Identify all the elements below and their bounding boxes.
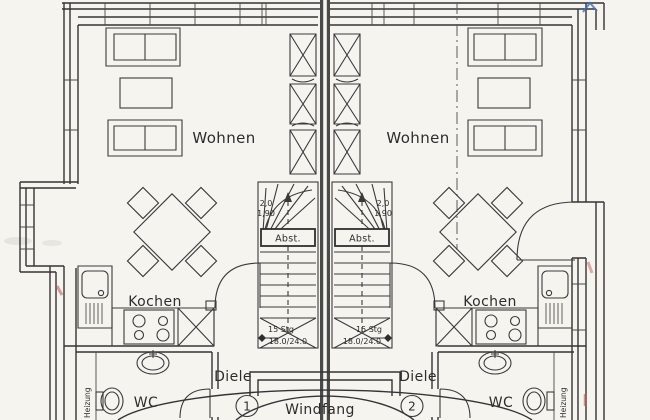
headroom-label: 1,90 [257, 209, 275, 218]
scan-smudge [4, 237, 32, 245]
scan-smudge [42, 240, 62, 246]
heating-label-right: Heizung [559, 387, 568, 418]
unit-number-2: 2 [408, 400, 416, 414]
steps-label: 15 Stg [268, 325, 294, 334]
unit-number-1: 1 [243, 400, 251, 414]
wc-label-right: WC [489, 395, 513, 411]
heating-label-left: Heizung [83, 387, 92, 418]
party-wall-leaf-right [327, 0, 330, 420]
rise-run-label: 18.0/24.0 [343, 337, 381, 346]
headroom-label: 2,0 [377, 199, 390, 208]
storage-label: Abst. [275, 234, 301, 245]
floorplan-scan: Abst. 2,0 1,90 15 Stg 18.0/24.0 Abst. 2,… [0, 0, 650, 420]
living-label-right: Wohnen [386, 129, 449, 147]
hall-label-right: Diele [399, 369, 437, 385]
storage-label: Abst. [349, 234, 375, 245]
party-wall-leaf-left [320, 0, 323, 420]
wc-label-left: WC [134, 395, 158, 411]
kitchen-label-left: Kochen [128, 294, 182, 310]
floorplan-drawing: Abst. 2,0 1,90 15 Stg 18.0/24.0 Abst. 2,… [0, 0, 650, 420]
headroom-label: 2,0 [260, 199, 273, 208]
hall-label-left: Diele [214, 369, 252, 385]
vestibule-label: Windfang [285, 402, 355, 418]
rise-run-label: 18.0/24.0 [269, 337, 307, 346]
living-label-left: Wohnen [192, 129, 255, 147]
paper-background [0, 0, 650, 420]
steps-label: 15 Stg [356, 325, 382, 334]
headroom-label: 1,90 [374, 209, 392, 218]
kitchen-label-right: Kochen [463, 294, 517, 310]
